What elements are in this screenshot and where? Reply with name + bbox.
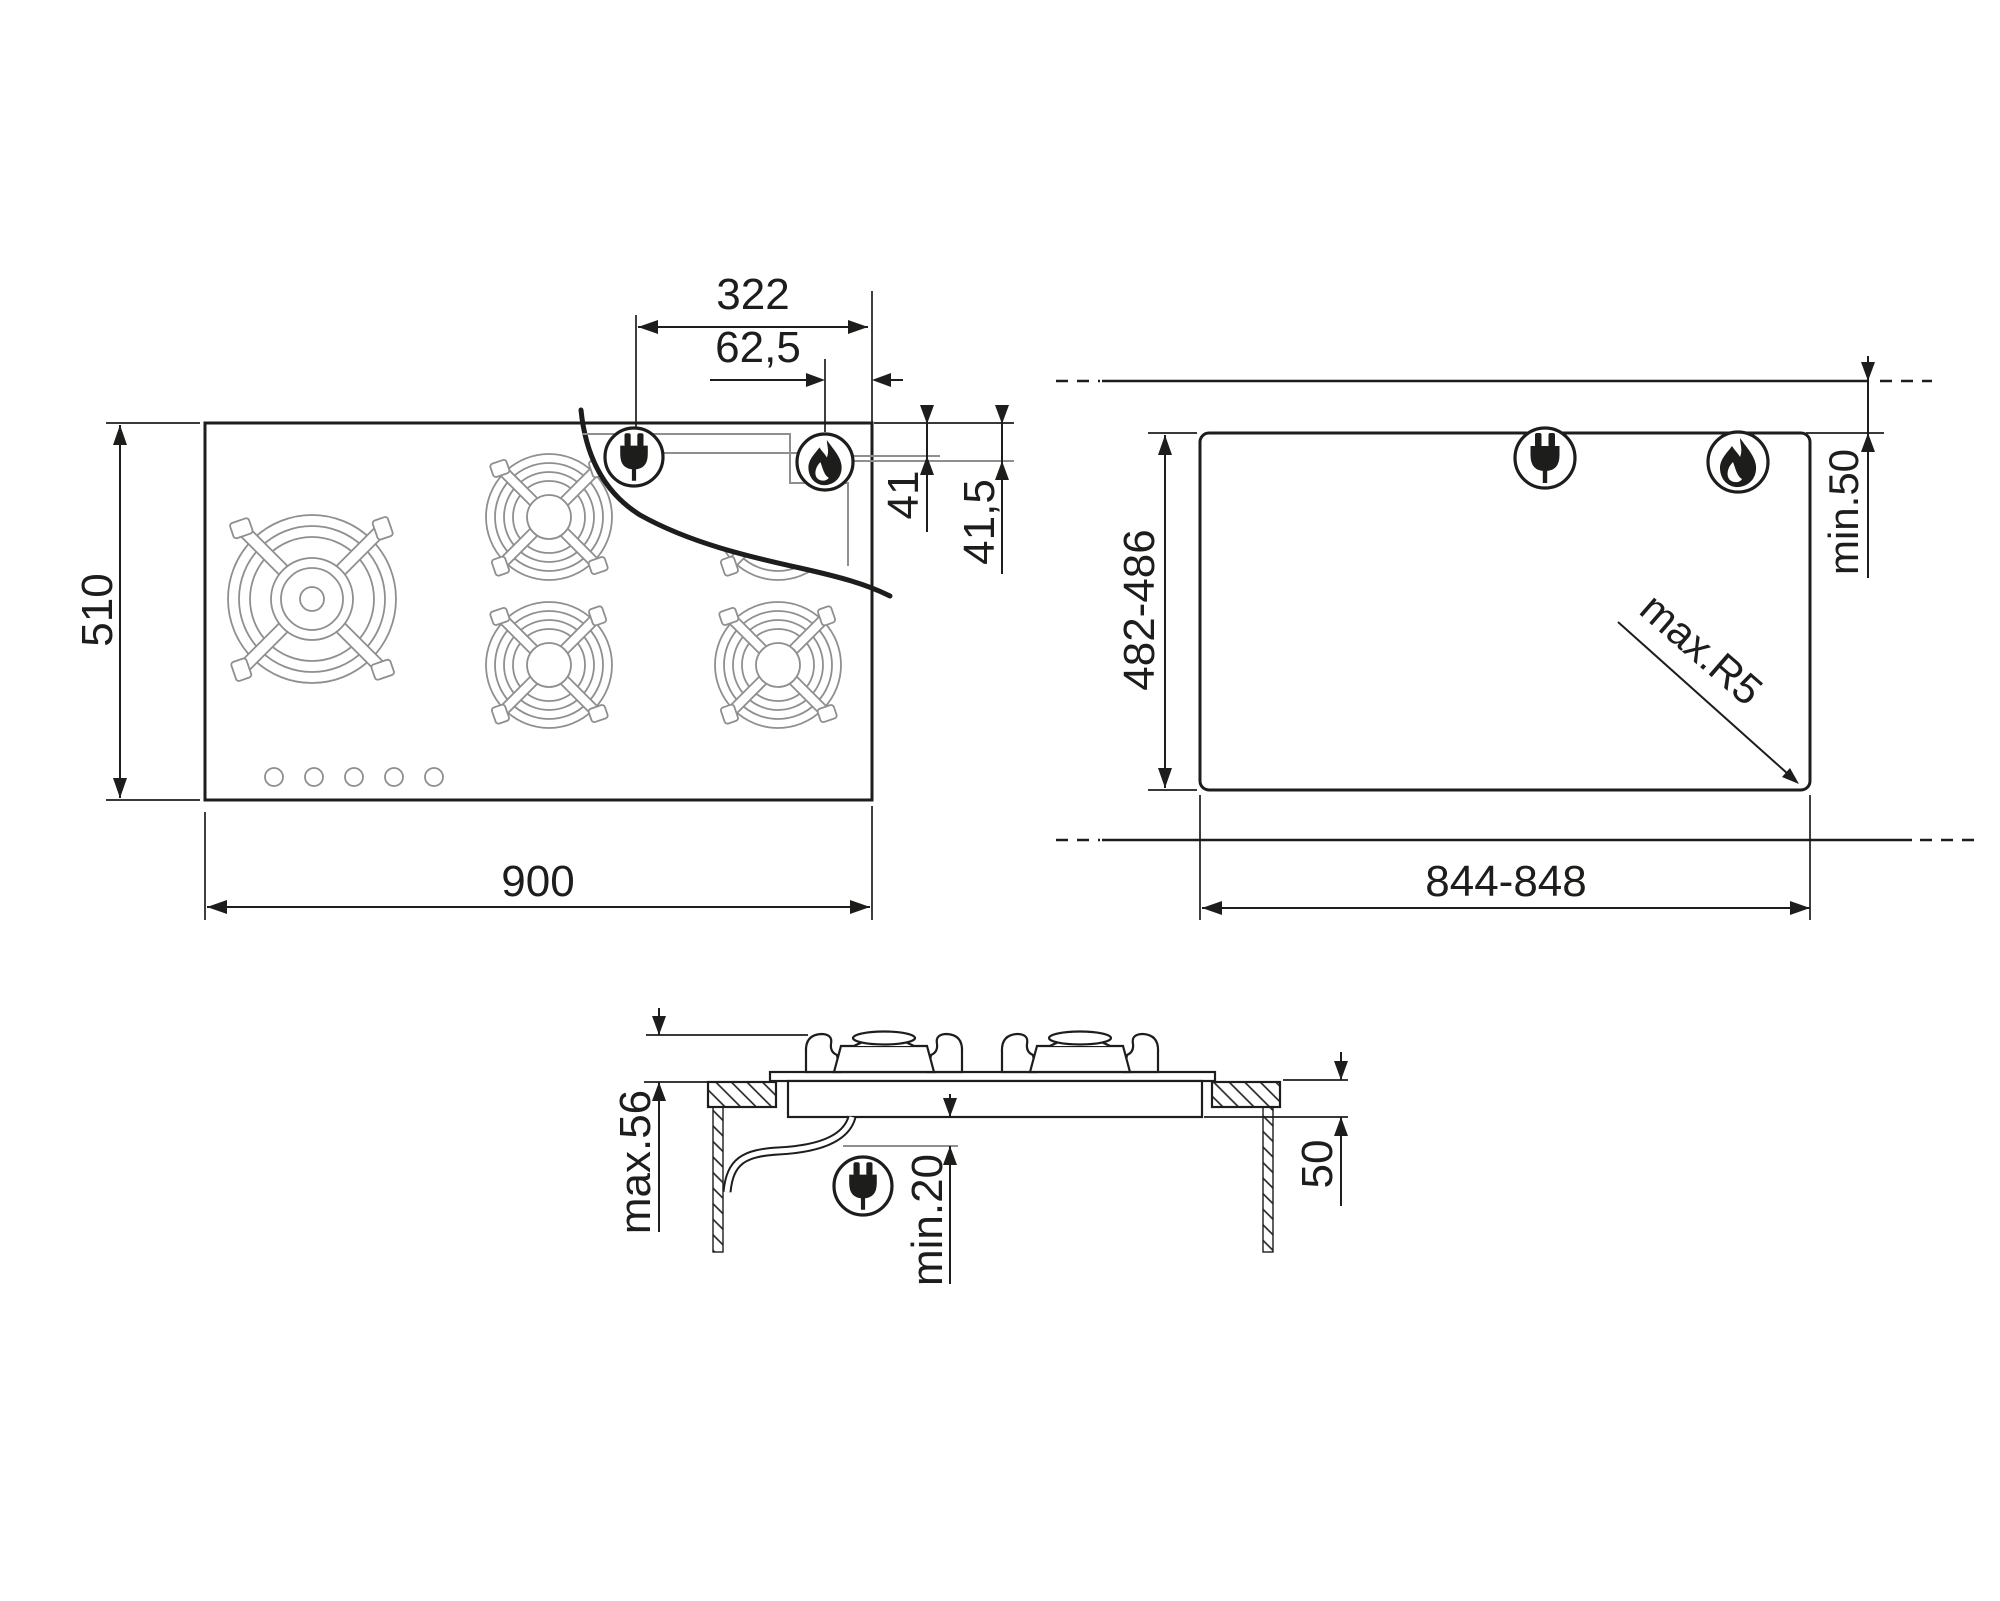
cutout-view: 482-486 844-848 min.50 max.R5: [1056, 356, 1976, 920]
power-plug-icon: [605, 428, 663, 486]
section-burner-left: [806, 1032, 962, 1073]
dim-gas-inset: 41 41,5: [874, 405, 1014, 574]
corner-radius-label: max.R5: [1631, 584, 1771, 714]
gas-inset-total-label: 41,5: [955, 479, 1004, 565]
depth-below-label: 50: [1293, 1140, 1342, 1189]
section-view: max.56 min.20 50: [611, 1008, 1348, 1286]
height-above-label: max.56: [611, 1090, 660, 1234]
hob-glass-section: [770, 1072, 1215, 1081]
dim-cutout-depth: 482-486: [1115, 433, 1197, 790]
dim-corner-radius: max.R5: [1618, 584, 1799, 784]
worktop-section-right: [1212, 1082, 1280, 1107]
power-plug-icon: [1515, 428, 1575, 488]
burner-small-top-middle: [485, 453, 613, 581]
hob-body-section: [788, 1081, 1202, 1117]
plan-view: 510 900 322 62,5: [73, 270, 1014, 920]
cutout-depth-label: 482-486: [1115, 529, 1164, 690]
dim-clearance-below: min.20: [903, 1094, 957, 1286]
burner-small-bottom-right: [714, 601, 842, 729]
cutout-width-label: 844-848: [1425, 857, 1586, 906]
dim-cutout-width: 844-848: [1200, 795, 1810, 920]
technical-drawing-page: 510 900 322 62,5: [0, 0, 2000, 1601]
burner-large: [224, 511, 399, 686]
gas-offset-label: 62,5: [715, 323, 801, 372]
gas-inset-label: 41: [879, 471, 928, 520]
hob-depth-label: 510: [73, 573, 122, 646]
dim-hob-depth: 510: [73, 423, 200, 800]
electric-offset-label: 322: [716, 270, 789, 319]
worktop-section-left: [708, 1082, 776, 1107]
cabinet-panel-left: [713, 1107, 723, 1252]
section-burner-right: [1002, 1032, 1158, 1073]
dim-rear-clearance: min.50: [1806, 356, 1884, 578]
clearance-below-label: min.20: [903, 1154, 952, 1286]
burner-small-bottom-middle: [485, 601, 613, 729]
dim-hob-width: 900: [205, 806, 872, 920]
power-plug-icon: [834, 1157, 892, 1215]
hob-width-label: 900: [501, 857, 574, 906]
cabinet-panel-right: [1263, 1107, 1273, 1252]
dim-height-above: max.56: [611, 1008, 808, 1234]
installation-diagram: 510 900 322 62,5: [0, 0, 2000, 1601]
dim-depth-below: 50: [1204, 1052, 1348, 1206]
gas-flame-icon: [1708, 432, 1768, 492]
rear-clearance-label: min.50: [1820, 449, 1867, 575]
gas-flame-icon: [797, 434, 853, 490]
